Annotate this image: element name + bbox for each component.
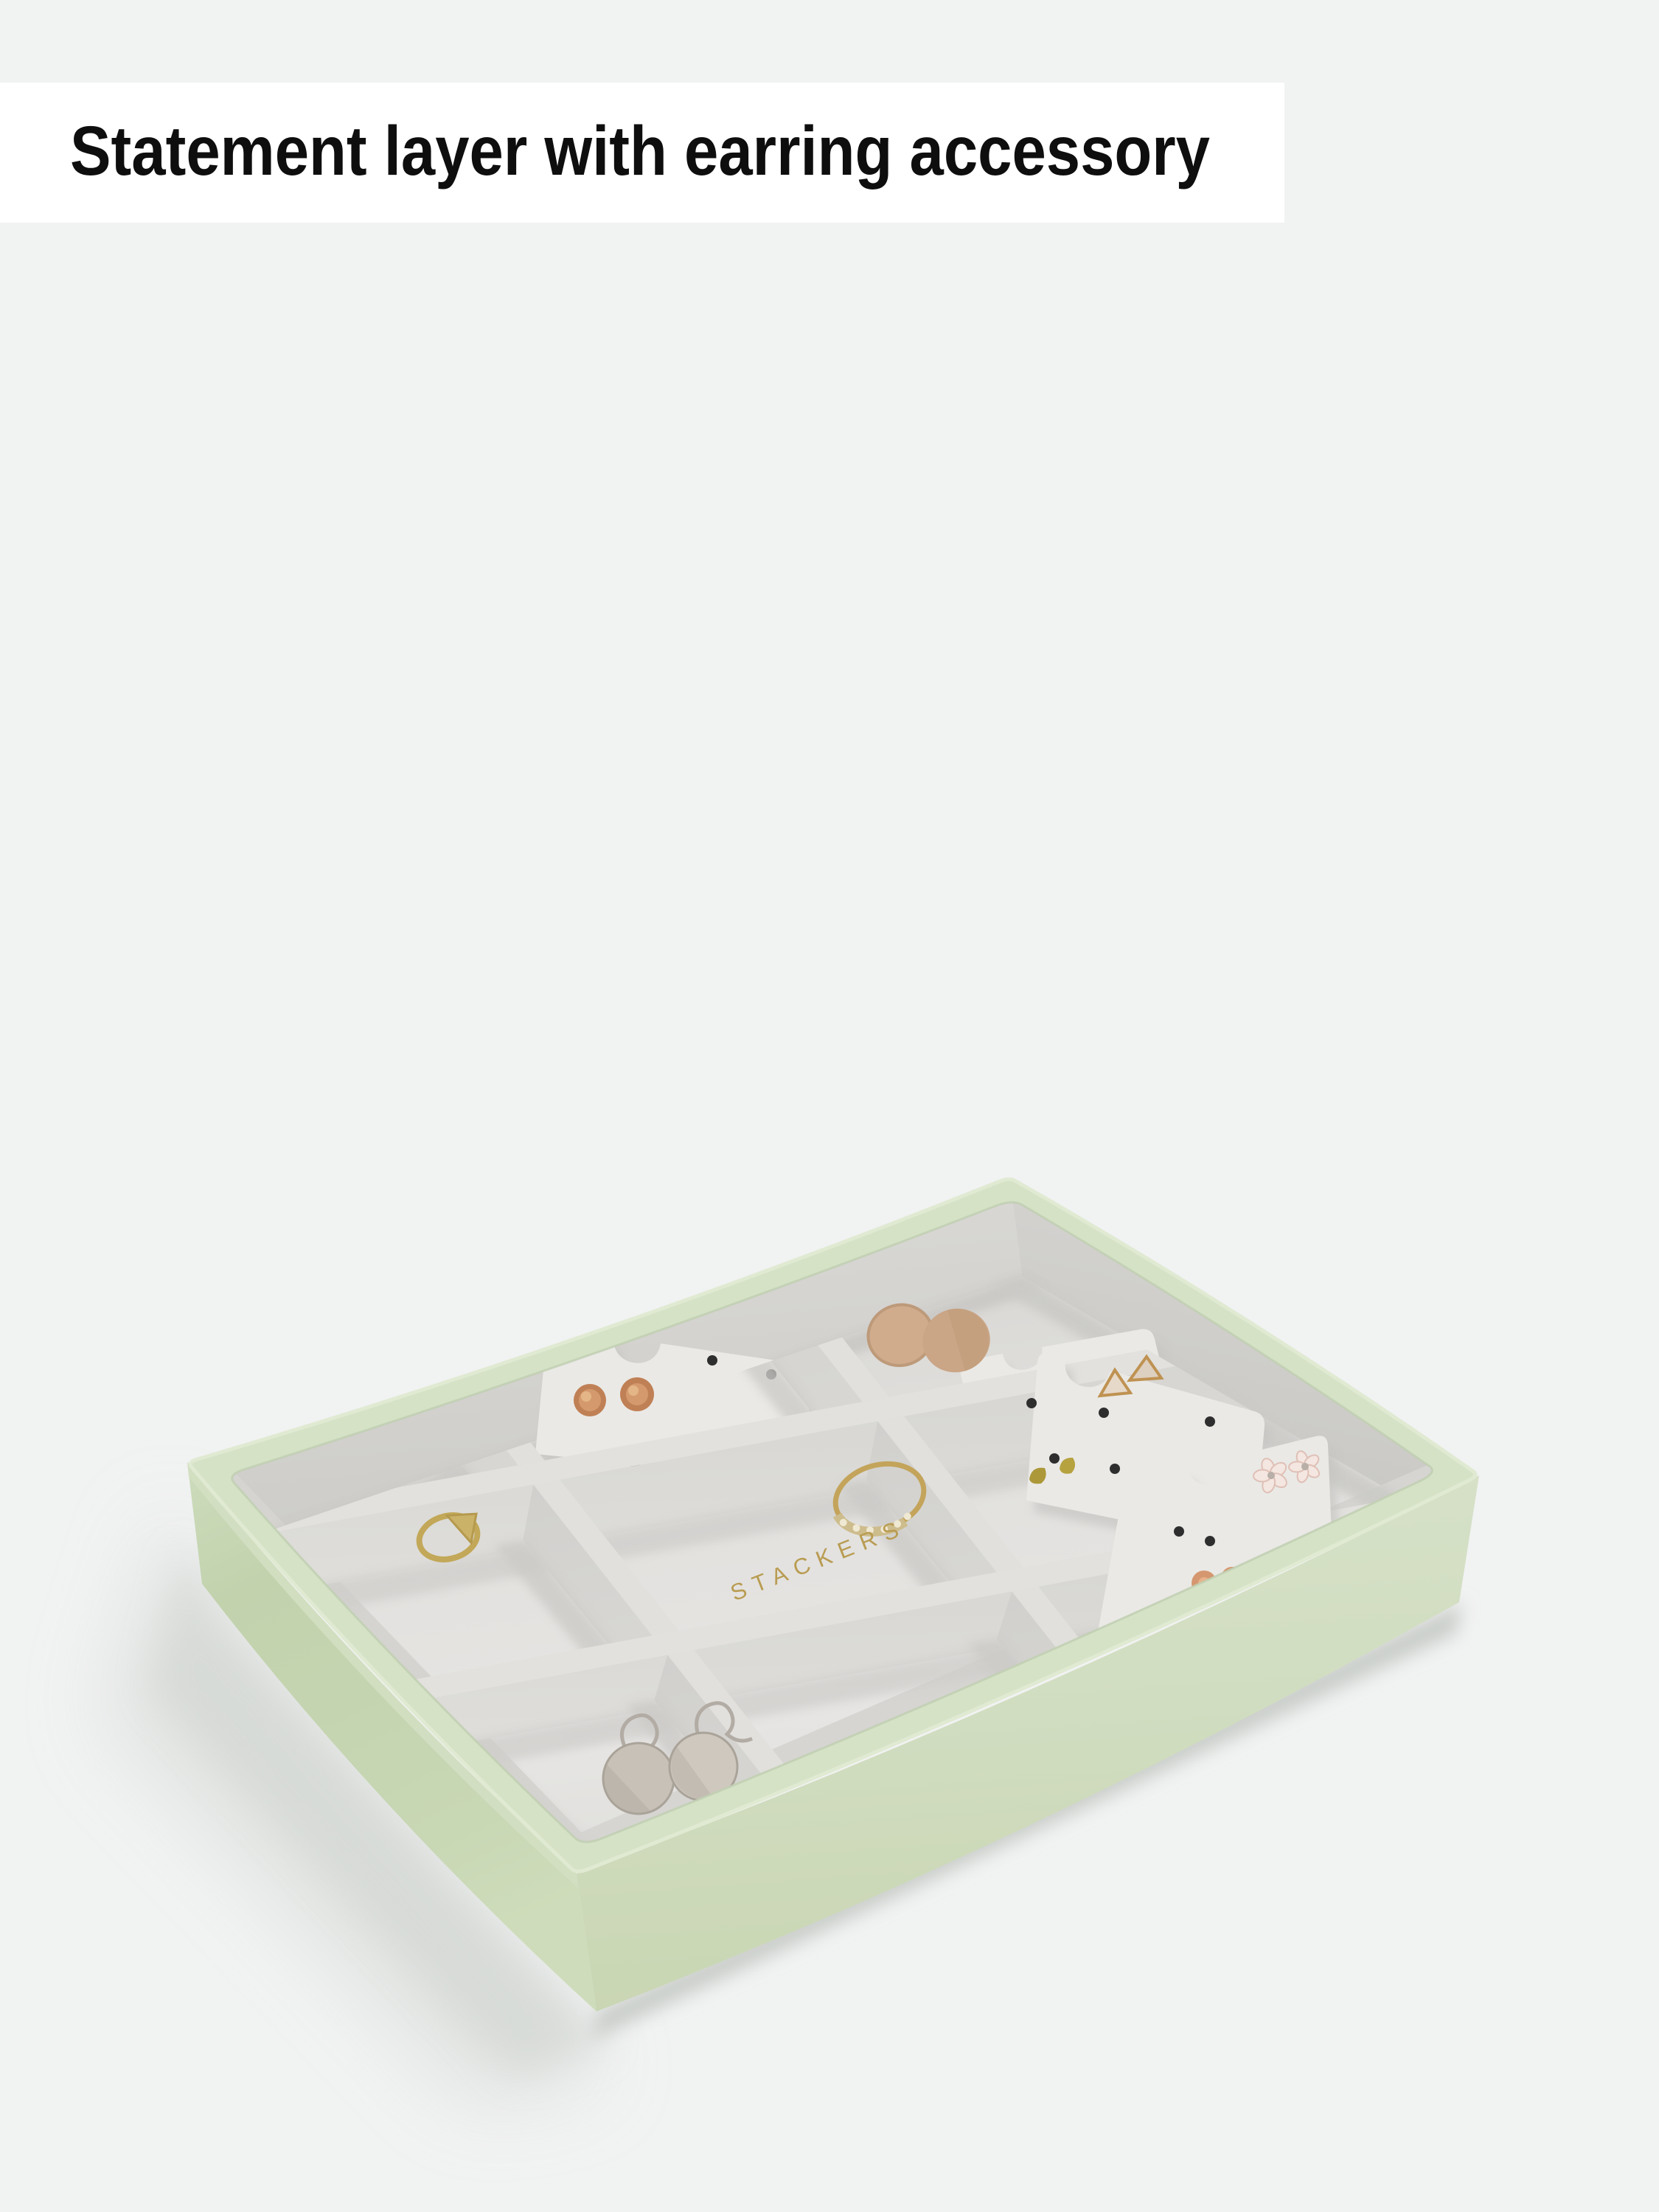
svg-text:Statement layer with earring a: Statement layer with earring accessory [70, 112, 1210, 190]
